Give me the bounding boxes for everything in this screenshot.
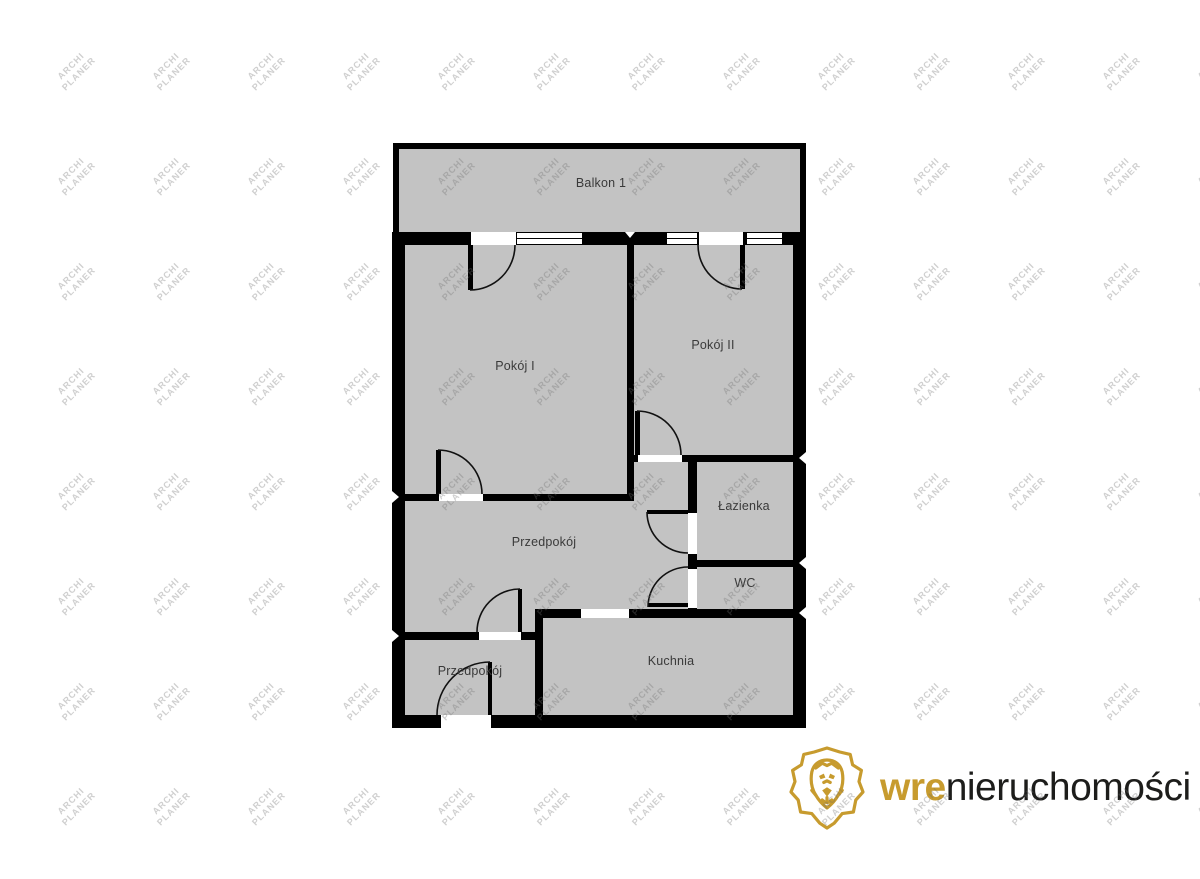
window-pokoj2-right <box>746 232 783 245</box>
watermark-text: ARCHIPLANER <box>52 152 98 198</box>
watermark-text: ARCHIPLANER <box>52 677 98 723</box>
brand-text-primary: wre <box>880 766 946 810</box>
watermark-text: ARCHIPLANER <box>337 467 383 513</box>
window-pokoj2-left <box>666 232 698 245</box>
brand-text-secondary: nieruchomości <box>946 766 1191 810</box>
watermark-text: ARCHIPLANER <box>242 467 288 513</box>
watermark-text: ARCHIPLANER <box>907 362 953 408</box>
watermark-text: ARCHIPLANER <box>1192 782 1200 828</box>
watermark-text: ARCHIPLANER <box>812 677 858 723</box>
watermark-text: ARCHIPLANER <box>622 47 668 93</box>
door-leaf-balcony-pokoj2 <box>740 245 745 289</box>
watermark-text: ARCHIPLANER <box>52 47 98 93</box>
watermark-text: ARCHIPLANER <box>432 47 478 93</box>
door-leaf-wc <box>648 603 688 607</box>
watermark-text: ARCHIPLANER <box>147 47 193 93</box>
watermark-text: ARCHIPLANER <box>337 677 383 723</box>
watermark-text: ARCHIPLANER <box>812 467 858 513</box>
watermark-text: ARCHIPLANER <box>337 572 383 618</box>
watermark-text: ARCHIPLANER <box>147 257 193 303</box>
watermark-text: ARCHIPLANER <box>527 782 573 828</box>
watermark-text: ARCHIPLANER <box>337 257 383 303</box>
watermark-text: ARCHIPLANER <box>52 467 98 513</box>
watermark-text: ARCHIPLANER <box>242 782 288 828</box>
watermark-text: ARCHIPLANER <box>1002 572 1048 618</box>
watermark-text: ARCHIPLANER <box>147 782 193 828</box>
watermark-text: ARCHIPLANER <box>1002 677 1048 723</box>
watermark-text: ARCHIPLANER <box>1097 467 1143 513</box>
watermark-text: ARCHIPLANER <box>907 257 953 303</box>
watermark-text: ARCHIPLANER <box>147 677 193 723</box>
wall-junction-notch <box>799 607 806 619</box>
wall-junction-notch <box>625 232 635 238</box>
window-pokoj1 <box>516 232 583 245</box>
watermark-text: ARCHIPLANER <box>337 362 383 408</box>
watermark-text: ARCHIPLANER <box>1002 362 1048 408</box>
watermark-text: ARCHIPLANER <box>907 467 953 513</box>
watermark-text: ARCHIPLANER <box>1097 362 1143 408</box>
door-opening-pokoj2-corridor <box>637 455 683 462</box>
door-opening-wc <box>688 568 697 609</box>
door-leaf-pokoj1 <box>436 450 441 494</box>
watermark-text: ARCHIPLANER <box>1097 257 1143 303</box>
outer-wall-left <box>392 232 405 728</box>
door-opening-pokoj1 <box>438 494 484 501</box>
watermark-text: ARCHIPLANER <box>147 572 193 618</box>
apartment-floor <box>405 245 793 715</box>
wall-przedpokoj-dolny-top <box>405 632 543 640</box>
watermark-text: ARCHIPLANER <box>337 47 383 93</box>
watermark-text: ARCHIPLANER <box>1097 152 1143 198</box>
balcony-door-opening-pokoj1 <box>470 232 517 245</box>
brand-logo: wrenieruchomości <box>786 744 1191 832</box>
wall-junction-notch <box>799 452 806 464</box>
watermark-text: ARCHIPLANER <box>812 362 858 408</box>
watermark-text: ARCHIPLANER <box>1192 257 1200 303</box>
watermark-text: ARCHIPLANER <box>1002 257 1048 303</box>
room-label-pokoj-ii: Pokój II <box>691 338 734 352</box>
watermark-text: ARCHIPLANER <box>907 677 953 723</box>
wall-pokoj1-pokoj2 <box>627 245 634 455</box>
door-leaf-przedpokoj <box>518 589 522 632</box>
door-leaf-pokoj2 <box>635 411 640 455</box>
entrance-door-opening <box>440 715 492 728</box>
watermark-text: ARCHIPLANER <box>1097 677 1143 723</box>
passage-opening-kuchnia <box>580 609 630 618</box>
balcony-door-opening-pokoj2 <box>698 232 744 245</box>
watermark-text: ARCHIPLANER <box>242 362 288 408</box>
watermark-text: ARCHIPLANER <box>52 572 98 618</box>
watermark-text: ARCHIPLANER <box>1002 467 1048 513</box>
watermark-text: ARCHIPLANER <box>242 677 288 723</box>
watermark-text: ARCHIPLANER <box>812 257 858 303</box>
watermark-text: ARCHIPLANER <box>147 152 193 198</box>
door-opening-przedpokoj <box>478 632 522 640</box>
balcony-wall-left <box>393 143 399 232</box>
watermark-text: ARCHIPLANER <box>52 257 98 303</box>
room-label-pokoj-i: Pokój I <box>495 359 535 373</box>
watermark-text: ARCHIPLANER <box>527 47 573 93</box>
wall-kuchnia-left <box>535 609 543 715</box>
room-label-wc: WC <box>734 576 755 590</box>
watermark-text: ARCHIPLANER <box>242 257 288 303</box>
brand-wordmark: wrenieruchomości <box>880 766 1191 810</box>
watermark-text: ARCHIPLANER <box>1097 572 1143 618</box>
watermark-text: ARCHIPLANER <box>242 152 288 198</box>
wall-junction-notch <box>799 557 806 569</box>
watermark-text: ARCHIPLANER <box>812 47 858 93</box>
balcony-wall-top <box>393 143 806 149</box>
watermark-text: ARCHIPLANER <box>907 47 953 93</box>
lion-icon <box>786 744 868 832</box>
watermark-text: ARCHIPLANER <box>1192 467 1200 513</box>
balcony-wall-right <box>800 143 806 232</box>
wall-junction-notch <box>392 630 399 642</box>
door-leaf-lazienka <box>647 510 688 514</box>
wall-kuchnia-top <box>535 609 793 618</box>
watermark-text: ARCHIPLANER <box>717 782 763 828</box>
watermark-text: ARCHIPLANER <box>52 362 98 408</box>
wall-junction-notch <box>392 491 399 503</box>
watermark-text: ARCHIPLANER <box>1192 677 1200 723</box>
watermark-text: ARCHIPLANER <box>432 782 478 828</box>
watermark-text: ARCHIPLANER <box>812 572 858 618</box>
watermark-text: ARCHIPLANER <box>622 782 668 828</box>
watermark-text: ARCHIPLANER <box>337 782 383 828</box>
watermark-text: ARCHIPLANER <box>242 572 288 618</box>
watermark-text: ARCHIPLANER <box>717 47 763 93</box>
door-opening-lazienka <box>688 512 697 555</box>
watermark-text: ARCHIPLANER <box>907 152 953 198</box>
room-label-lazienka: Łazienka <box>718 499 770 513</box>
watermark-text: ARCHIPLANER <box>147 362 193 408</box>
watermark-text: ARCHIPLANER <box>907 572 953 618</box>
watermark-text: ARCHIPLANER <box>242 47 288 93</box>
watermark-text: ARCHIPLANER <box>1002 152 1048 198</box>
room-label-przedpokoj-gorny: Przedpokój <box>512 535 577 549</box>
watermark-text: ARCHIPLANER <box>52 782 98 828</box>
watermark-text: ARCHIPLANER <box>1097 47 1143 93</box>
room-label-kuchnia: Kuchnia <box>648 654 695 668</box>
balcony-floor <box>399 149 801 232</box>
watermark-text: ARCHIPLANER <box>1192 152 1200 198</box>
outer-wall-right <box>793 232 806 728</box>
door-leaf-balcony-pokoj1 <box>468 245 473 290</box>
watermark-text: ARCHIPLANER <box>337 152 383 198</box>
room-label-przedpokoj-dolny: Przedpokój <box>438 664 503 678</box>
watermark-text: ARCHIPLANER <box>1192 47 1200 93</box>
watermark-text: ARCHIPLANER <box>1192 572 1200 618</box>
floorplan-page: Balkon 1 Pokój I Pokój II Łazienka WC Pr… <box>0 0 1200 879</box>
wall-lazienka-wc <box>697 560 793 567</box>
watermark-text: ARCHIPLANER <box>147 467 193 513</box>
watermark-text: ARCHIPLANER <box>1192 362 1200 408</box>
watermark-text: ARCHIPLANER <box>812 152 858 198</box>
room-label-balkon-1: Balkon 1 <box>576 176 626 190</box>
watermark-text: ARCHIPLANER <box>1002 47 1048 93</box>
